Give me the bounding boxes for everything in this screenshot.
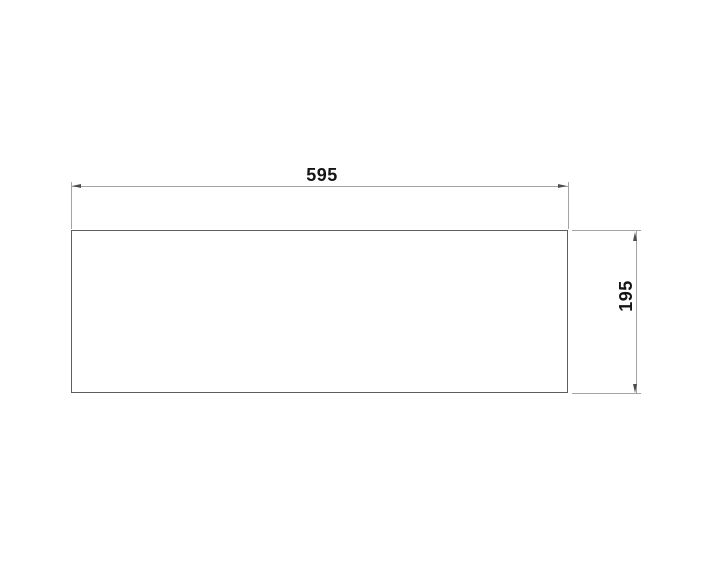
height-dimension-line: [636, 231, 637, 393]
height-dimension-label: 195: [617, 280, 635, 312]
dimension-arrow-left-icon: [72, 184, 81, 188]
height-extension-line-bottom: [572, 393, 641, 394]
dimension-arrow-right-icon: [558, 184, 567, 188]
dimension-arrow-down-icon: [633, 384, 637, 393]
drawing-canvas: 595 195: [0, 0, 710, 568]
dimension-arrow-up-icon: [633, 232, 637, 241]
part-outline-rectangle: [71, 230, 568, 393]
width-dimension-label: 595: [306, 166, 338, 184]
width-dimension-line: [72, 186, 569, 187]
width-extension-line-left: [71, 182, 72, 229]
height-extension-line-top: [572, 230, 641, 231]
width-extension-line-right: [568, 182, 569, 229]
